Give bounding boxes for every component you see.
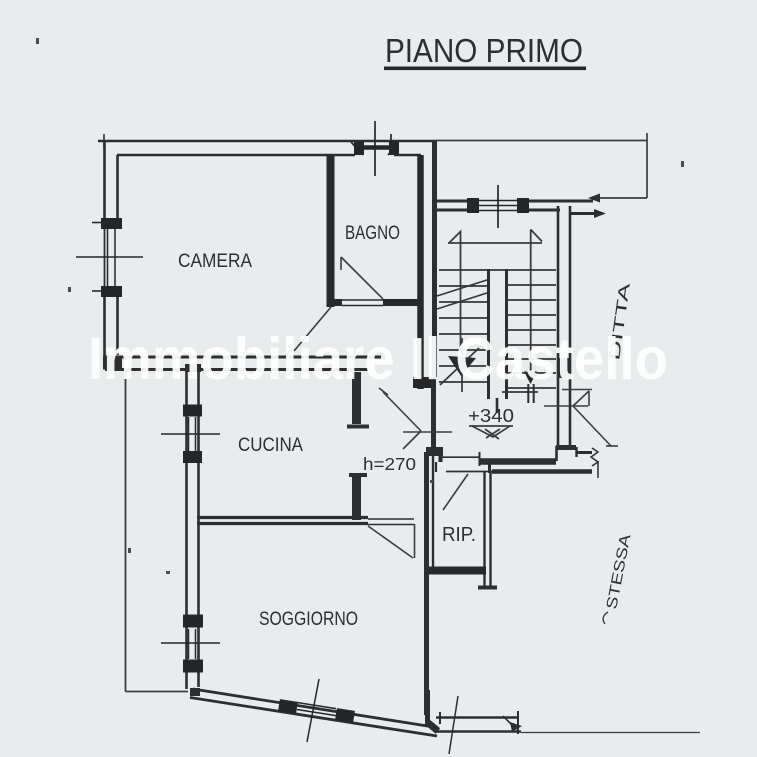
svg-text:+340: +340 [468,406,514,426]
svg-text:SOGGIORNO: SOGGIORNO [259,608,358,630]
svg-text:BAGNO: BAGNO [345,222,400,244]
svg-text:Immobiliare Il Castello: Immobiliare Il Castello [88,326,668,392]
svg-text:CAMERA: CAMERA [178,251,252,272]
svg-text:PIANO PRIMO: PIANO PRIMO [385,32,583,69]
svg-text:RIP.: RIP. [442,524,476,546]
svg-text:CUCINA: CUCINA [238,435,303,456]
svg-text:h=270: h=270 [363,454,416,474]
